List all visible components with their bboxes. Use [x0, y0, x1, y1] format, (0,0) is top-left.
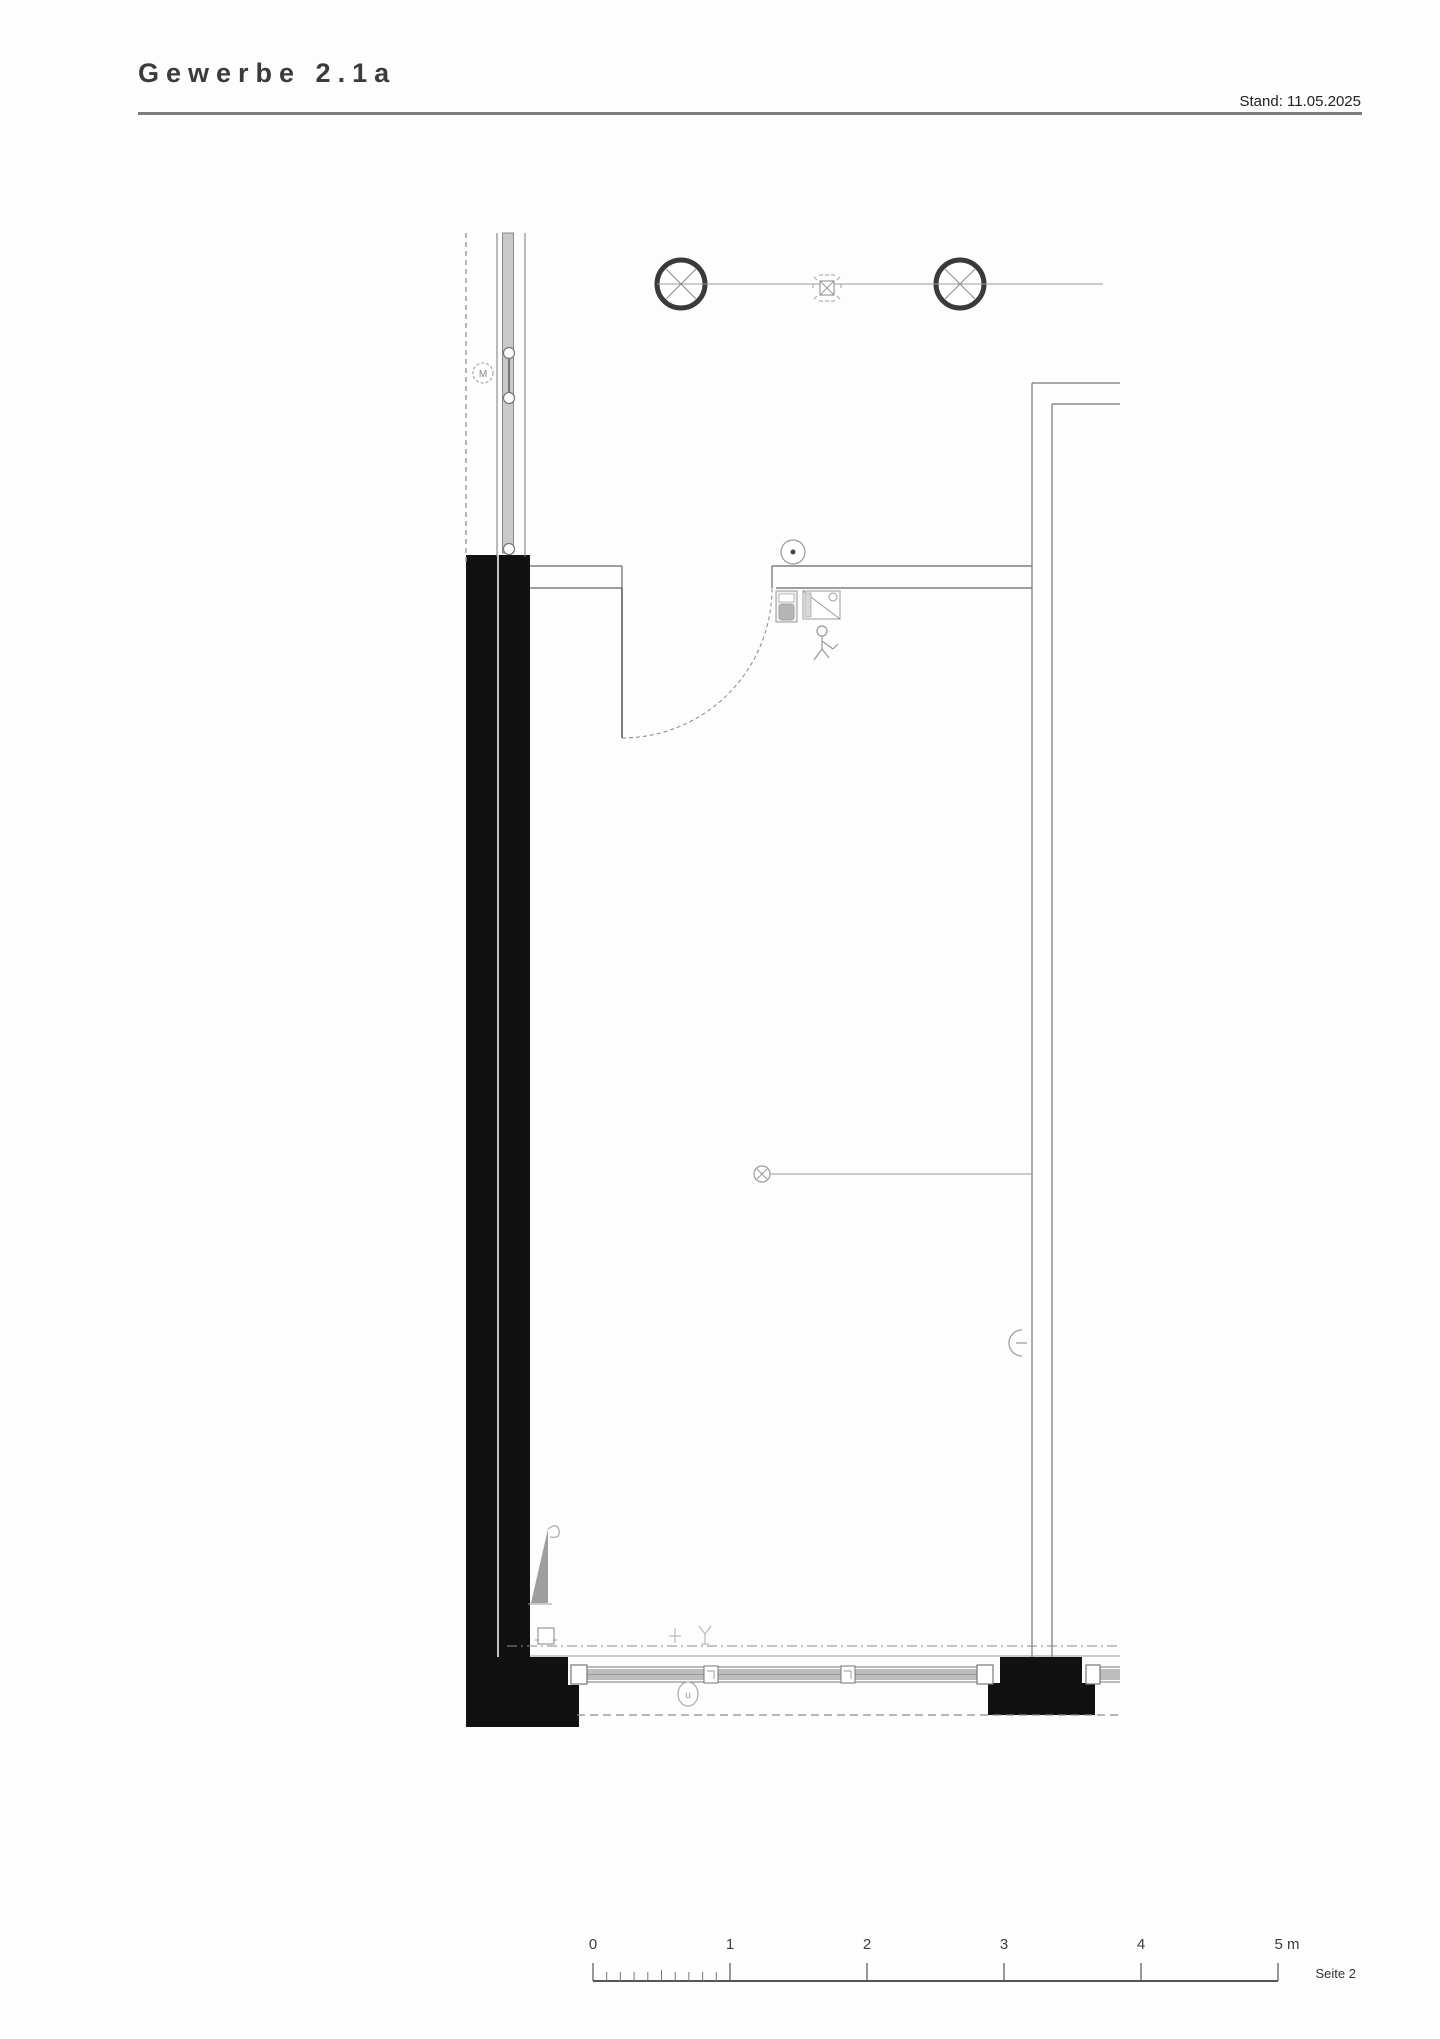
left-wall-poche — [466, 555, 579, 1727]
shading-device-triangle — [528, 1526, 559, 1604]
appliance-box-icon — [803, 591, 840, 619]
storefront-glazing-right — [1086, 1665, 1120, 1684]
svg-text:u: u — [685, 1690, 691, 1701]
sink-appliance-icon — [776, 591, 797, 622]
scale-label-3: 3 — [1000, 1936, 1008, 1953]
bottom-right-wall-poche — [988, 1657, 1095, 1715]
floor-plan-drawing: M — [0, 0, 1440, 2039]
junction-box-icon — [813, 275, 841, 301]
floor-box-icon — [535, 1628, 557, 1644]
ceiling-lights-row — [657, 260, 1103, 308]
person-figure-icon — [814, 626, 838, 660]
smoke-detector-icon — [781, 540, 805, 564]
left-window-assembly — [466, 233, 525, 566]
upper-wall-band — [530, 566, 1032, 588]
scale-label-1: 1 — [726, 1936, 734, 1953]
ceiling-outlet-leader — [754, 1166, 1032, 1182]
scale-label-0: 0 — [589, 1936, 597, 1953]
small-fixture-icons — [669, 1626, 711, 1644]
scale-label-4: 4 — [1137, 1936, 1145, 1953]
storefront-door-marker: u — [678, 1682, 698, 1706]
right-wall — [1032, 383, 1120, 1657]
page-number: Seite 2 — [1316, 1966, 1356, 1981]
scale-label-5m: 5 m — [1274, 1936, 1299, 1953]
door-swing — [622, 588, 772, 738]
wall-connection-arc-icon — [1009, 1330, 1027, 1356]
svg-text:M: M — [479, 369, 487, 380]
scale-bar — [593, 1963, 1278, 1981]
scale-label-2: 2 — [863, 1936, 871, 1953]
window-motor-marker: M — [473, 363, 493, 383]
storefront-glazing — [571, 1665, 993, 1684]
